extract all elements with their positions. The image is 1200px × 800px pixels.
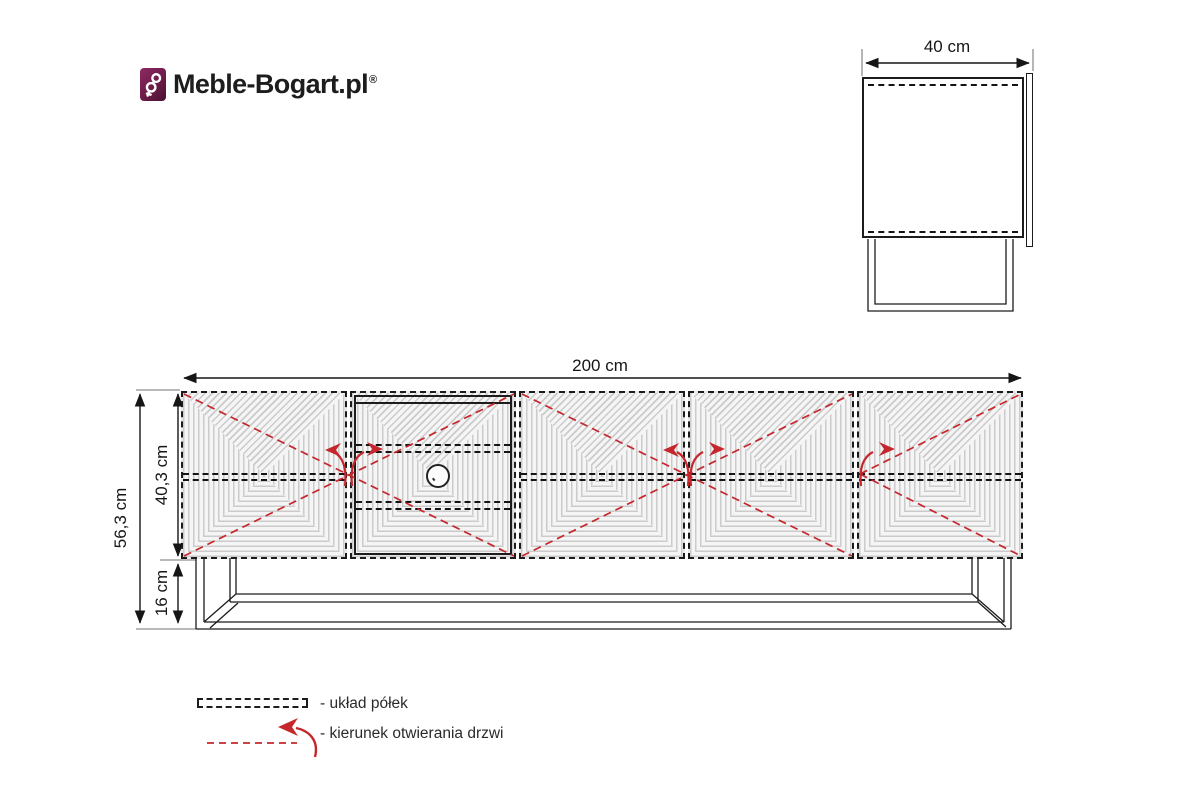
drawer-knob: [426, 464, 450, 488]
drawer-divider: [356, 501, 510, 510]
technical-drawing-page: Meble-Bogart.pl®: [0, 0, 1200, 800]
side-view-carcass: [862, 77, 1024, 238]
legend-shelf-label: - układ półek: [320, 695, 408, 713]
shelf-dashed-line: [859, 473, 1021, 481]
shelf-dashed-line: [521, 473, 683, 481]
logo-mark: [140, 68, 166, 101]
shelf-dashed-line: [690, 473, 852, 481]
front-door-3: [688, 391, 854, 559]
side-width-label: 40 cm: [924, 37, 970, 57]
carcass-height-label: 40,3 cm: [152, 445, 172, 505]
side-shelf-dashed-line: [868, 84, 1018, 86]
brand-logo: Meble-Bogart.pl®: [140, 68, 377, 101]
side-view-front-panel: [1026, 73, 1033, 247]
total-height-label: 56,3 cm: [111, 488, 131, 548]
front-width-label: 200 cm: [572, 356, 628, 376]
front-leg-frame: [196, 558, 1011, 629]
key-icon: [142, 70, 164, 99]
brand-name: Meble-Bogart.pl®: [173, 69, 377, 100]
shelf-dashed-line: [183, 473, 345, 481]
legs-height-label: 16 cm: [152, 570, 172, 616]
front-door-4: [857, 391, 1023, 559]
side-shelf-dashed-line: [868, 231, 1018, 233]
side-leg-frame: [868, 239, 1013, 311]
front-door-1: [181, 391, 347, 559]
front-door-2: [519, 391, 685, 559]
drawer-divider: [356, 444, 510, 453]
legend-door-label: - kierunek otwierania drzwi: [320, 725, 504, 743]
legend-door-arrow-symbol: [207, 718, 316, 757]
front-drawer-unit: [350, 391, 516, 559]
legend-shelf-symbol: [197, 698, 308, 708]
registered-mark: ®: [369, 74, 377, 86]
